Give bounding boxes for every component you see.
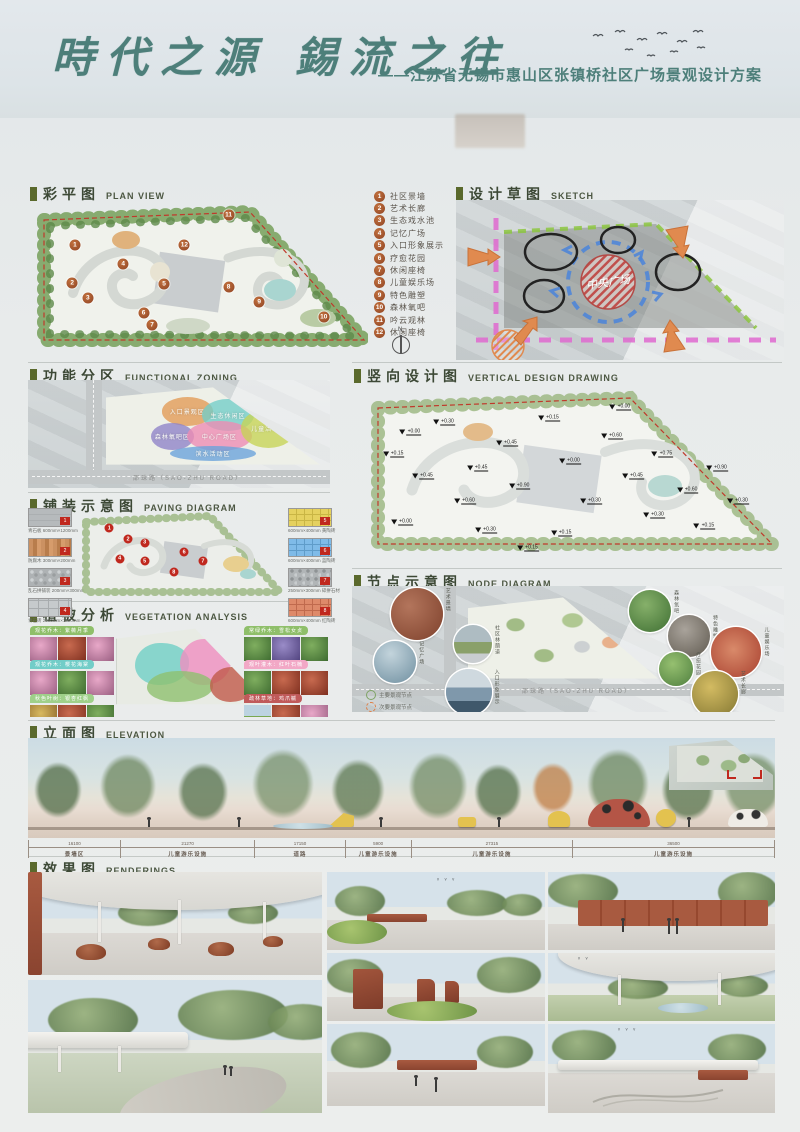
legend-label: 特色雕塑 [390, 290, 426, 301]
spot-triangle-icon [383, 452, 389, 457]
segment-dimension: 16100 [29, 841, 120, 848]
spot-triangle-icon [551, 531, 557, 536]
render-table [263, 936, 283, 947]
spot-elevation-marker: +0.75 [652, 451, 674, 458]
node-label: 艺术景墙 [445, 588, 452, 612]
render-column [58, 1046, 61, 1072]
north-compass-icon: N [392, 336, 410, 354]
legend-label: 社区景墙 [390, 191, 426, 202]
spot-value: +0.45 [503, 440, 518, 447]
vegetation-tag: 疏林草地：鸡爪槭 [244, 694, 302, 703]
node-label: 社区林荫道 [494, 625, 501, 655]
segment-label: 儿童游乐设施 [573, 850, 774, 858]
paving-swatch: 5600mm×400mm 黄陶砖 [288, 508, 330, 534]
spot-value: +0.90 [713, 465, 728, 472]
render-tree [477, 957, 541, 993]
render-monolith [353, 969, 383, 1009]
plan-marker: 10 [318, 312, 329, 323]
node-legend-label: 次要景观节点 [379, 703, 412, 711]
spot-value: +0.60 [684, 487, 699, 494]
play-box [458, 817, 476, 827]
road-vertical [86, 380, 102, 472]
segment-dimension: 21270 [121, 841, 254, 848]
spot-elevation-marker: +0.30 [727, 497, 749, 504]
spot-triangle-icon [677, 488, 683, 493]
plan-marker: 9 [254, 296, 265, 307]
plan-number-markers: 123456789101112 [28, 198, 368, 355]
paving-swatch-number: 4 [60, 607, 70, 615]
spot-value: +0.90 [516, 483, 531, 490]
render-tree [477, 1036, 533, 1068]
segment-dimension: 27315 [412, 841, 572, 848]
vertical-design-drawing: +0.00+0.30+0.15+0.45+0.60+0.00+0.30+0.90… [360, 382, 780, 562]
paving-dot: 1 [105, 524, 114, 533]
legend-item: 12休闲座椅 [374, 326, 460, 338]
spot-value: +0.00 [398, 519, 413, 526]
legend-number: 2 [374, 203, 385, 214]
spot-triangle-icon [622, 473, 628, 478]
spot-triangle-icon [559, 459, 565, 464]
zoning-zones: 入口景观区生态休闲区森林氧吧区中心广场区滨水活动区儿童活动区 [106, 384, 320, 468]
spot-elevation-marker: +0.30 [475, 526, 497, 533]
vegetation-photo-strips: 观花乔木：紫薇月季观花乔木：樱花海棠秋色叶树：银杏红枫常绿乔木：雪松女贞观叶灌木… [28, 615, 330, 717]
elevation-groundline [28, 827, 775, 830]
spot-triangle-icon [706, 466, 712, 471]
render-lawn-mound [327, 920, 387, 944]
paving-swatch: 1青石板 600mm×1200mm [28, 508, 70, 534]
paving-swatch: 6600mm×400mm 蓝陶砖 [288, 538, 330, 564]
design-poster: 時代之源 錫流之往 ——江苏省无锡市惠山区张镇桥社区广场景观设计方案 彩平图 P… [0, 0, 800, 1132]
rendering-community-path [28, 980, 322, 1113]
legend-label: 休闲座椅 [390, 265, 426, 276]
elevation-segment: 5900儿童游乐设施 [345, 840, 411, 858]
section-mark [753, 770, 762, 779]
paving-swatch-number: 5 [320, 517, 330, 525]
paving-swatch-sample: 7 [288, 568, 332, 587]
legend-label: 记忆广场 [390, 228, 426, 239]
paving-swatch-number: 6 [320, 547, 330, 555]
spot-triangle-icon [538, 416, 544, 421]
legend-item: 2艺术长廊 [374, 202, 460, 214]
rendering-memory-wall [548, 872, 775, 950]
spot-value: +0.15 [524, 544, 539, 551]
legend-label: 吟云观林 [390, 315, 426, 326]
vegetation-tag: 观花乔木：樱花海棠 [30, 660, 94, 669]
paving-swatch: 3乱石拼铺装 200mm×300mm [28, 568, 70, 594]
zone-label: 儿童活动区 [251, 424, 286, 433]
legend-number: 10 [374, 302, 385, 313]
elevation-dimension-line: 16100景墙区21270儿童游乐设施17150道路5900儿童游乐设施2731… [28, 840, 775, 858]
sketch-drawing: 中央广场 [456, 200, 784, 360]
legend-label: 生态戏水池 [390, 215, 435, 226]
node-photo [454, 625, 492, 663]
legend-item: 11吟云观林 [374, 314, 460, 326]
paving-dot: 5 [140, 557, 149, 566]
node-label: 疗愈花园 [695, 652, 702, 676]
legend-number: 1 [374, 191, 385, 202]
legend-item: 8儿童娱乐场 [374, 277, 460, 289]
birds-flock-icon: ᵛ ᵛ [578, 957, 590, 963]
elevation-drawing [28, 738, 775, 838]
render-lawn-mound [387, 1001, 477, 1021]
vegetation-tag: 秋色叶树：银杏红枫 [30, 694, 94, 703]
legend-item: 7休闲座椅 [374, 264, 460, 276]
section-title-en: SKETCH [551, 188, 594, 201]
paving-swatch-caption: 乱石拼铺装 200mm×300mm [28, 588, 70, 594]
spot-elevation-marker: +0.00 [400, 429, 422, 436]
zone-label: 入口景观区 [170, 407, 205, 416]
person-silhouette [415, 1078, 417, 1086]
legend-item: 4记忆广场 [374, 227, 460, 239]
spot-elevation-marker: +0.15 [517, 544, 539, 551]
rendering-art-monoliths [327, 953, 545, 1021]
page-subtitle: ——江苏省无锡市惠山区张镇桥社区广场景观设计方案 [378, 64, 762, 85]
legend-number: 3 [374, 215, 385, 226]
paving-swatch-number: 7 [320, 577, 330, 585]
elevation-spot-markers: +0.00+0.30+0.15+0.45+0.60+0.00+0.30+0.90… [360, 382, 780, 562]
legend-item: 6疗愈花园 [374, 252, 460, 264]
section-title-en: VERTICAL DESIGN DRAWING [468, 370, 619, 383]
legend-number: 12 [374, 327, 385, 338]
node-diagram: 邵珠路（SAO-ZHU ROAD） 艺术景墙记忆广场社区林荫道入口形象展示森林氧… [352, 586, 784, 712]
person-silhouette [148, 820, 150, 827]
render-column [98, 902, 101, 942]
paving-swatch: 7250mm×300mm 碎拼石材 [288, 568, 330, 594]
paving-swatch-sample: 6 [288, 538, 332, 557]
render-tree [447, 890, 507, 916]
paving-swatch-number: 3 [60, 577, 70, 585]
render-tree [335, 886, 385, 916]
render-column [118, 1046, 121, 1072]
render-brick-wall [578, 900, 768, 926]
render-low-wall [367, 914, 427, 922]
elevation-segment: 27315儿童游乐设施 [411, 840, 572, 858]
node-photo [659, 652, 693, 686]
divider [28, 492, 330, 493]
legend-label: 入口形象展示 [390, 240, 444, 251]
node-photo [692, 671, 738, 712]
spot-value: +0.45 [474, 465, 489, 472]
render-column [618, 975, 621, 1005]
white-dome [728, 809, 768, 827]
divider [352, 362, 782, 363]
legend-label: 儿童娱乐场 [390, 277, 435, 288]
spot-triangle-icon [412, 473, 418, 478]
paving-swatch-caption: 600mm×400mm 黄陶砖 [288, 528, 330, 534]
plant-photo [58, 705, 85, 717]
zone-label: 森林氧吧区 [155, 432, 190, 441]
divider [352, 568, 782, 569]
spot-triangle-icon [475, 527, 481, 532]
road-label: 邵珠路（SAO-ZHU ROAD） [133, 473, 243, 482]
render-tree [502, 894, 542, 916]
paving-swatch-caption: 600mm×400mm 蓝陶砖 [288, 558, 330, 564]
paving-swatch-caption: 青石板 600mm×1200mm [28, 528, 70, 534]
spot-value: +0.15 [545, 415, 560, 422]
render-pergola [28, 1032, 188, 1048]
spot-triangle-icon [610, 405, 616, 410]
plan-legend: 1社区景墙2艺术长廊3生态戏水池4记忆广场5入口形象展示6疗愈花园7休闲座椅8儿… [374, 190, 460, 339]
segment-label: 儿童游乐设施 [412, 850, 572, 858]
legend-item: 10森林氧吧 [374, 302, 460, 314]
section-mark [727, 770, 736, 779]
legend-label: 疗愈花园 [390, 253, 426, 264]
render-table [208, 942, 234, 956]
paving-swatch-sample: 1 [28, 508, 72, 527]
paving-dot: 6 [180, 548, 189, 557]
node-label: 森林氧吧 [673, 590, 680, 614]
legend-number: 8 [374, 277, 385, 288]
function-zone: 滨水活动区 [170, 446, 256, 461]
person-silhouette [498, 820, 500, 827]
plan-marker: 4 [118, 258, 129, 269]
spot-elevation-marker: +0.15 [383, 451, 405, 458]
birds-flock-icon: ᵛ ᵛ ᵛ [618, 1028, 637, 1034]
spot-triangle-icon [509, 484, 515, 489]
elevation-segment: 17150道路 [254, 840, 344, 858]
plant-photo [244, 705, 271, 717]
paving-swatch-number: 2 [60, 547, 70, 555]
paving-swatch-sample: 5 [288, 508, 332, 527]
render-column [718, 973, 721, 1005]
render-table [76, 944, 106, 960]
zone-label: 中心广场区 [202, 432, 237, 441]
spot-value: +0.30 [734, 497, 749, 504]
paving-swatch-sample: 3 [28, 568, 72, 587]
render-column [178, 900, 181, 944]
plan-marker: 8 [223, 282, 234, 293]
legend-label: 艺术长廊 [390, 203, 426, 214]
rendering-plaza-overview: ᵛ ᵛ ᵛ [327, 872, 545, 950]
legend-number: 7 [374, 265, 385, 276]
node-legend-item: 次要景观节点 [366, 702, 412, 712]
birds-flock-icon [585, 26, 715, 66]
rendering-canopy-plaza [28, 872, 322, 975]
vegetation-photos [30, 705, 114, 717]
spot-elevation-marker: +0.90 [706, 465, 728, 472]
spot-value: +0.45 [629, 472, 644, 479]
spot-value: +0.30 [440, 418, 455, 425]
rendering-street-view [327, 1024, 545, 1106]
spot-elevation-marker: +0.45 [622, 472, 644, 479]
spot-elevation-marker: +0.60 [454, 497, 476, 504]
render-pond [658, 1003, 708, 1013]
plan-marker: 12 [179, 240, 190, 251]
spot-triangle-icon [517, 545, 523, 550]
segment-dimension: 36500 [573, 841, 774, 848]
spot-elevation-marker: +0.15 [694, 523, 716, 530]
node-label: 记忆广场 [418, 641, 425, 665]
node-label: 入口形象展示 [494, 669, 501, 705]
paving-dot: 4 [115, 554, 124, 563]
legend-number: 9 [374, 290, 385, 301]
spot-elevation-marker: +0.30 [580, 497, 602, 504]
segment-dimension: 17150 [255, 841, 344, 848]
person-silhouette [230, 1069, 232, 1076]
spot-elevation-marker: +0.00 [391, 519, 413, 526]
person-silhouette [676, 921, 678, 934]
node-photo [391, 588, 443, 640]
plan-marker: 5 [159, 279, 170, 290]
spot-elevation-marker: +0.90 [509, 483, 531, 490]
node-photo [668, 615, 710, 657]
render-tree [331, 1032, 391, 1068]
person-silhouette [380, 820, 382, 827]
plant-photo [87, 705, 114, 717]
road-centerline [93, 380, 94, 472]
spot-value: +0.75 [659, 451, 674, 458]
spot-elevation-marker: +0.15 [538, 415, 560, 422]
person-silhouette [435, 1080, 437, 1092]
vegetation-strip: 秋色叶树：银杏红枫 [30, 687, 114, 717]
legend-item: 5入口形象展示 [374, 240, 460, 252]
spot-triangle-icon [391, 520, 397, 525]
node-photo [446, 669, 492, 712]
vegetation-tag: 观叶灌木：红叶石楠 [244, 660, 308, 669]
spot-value: +0.30 [482, 526, 497, 533]
primary-node-icon [366, 690, 376, 700]
render-pavement-pattern [588, 1082, 728, 1108]
node-legend: 主要景观节点次要景观节点 [366, 690, 412, 712]
water-feature [273, 823, 333, 829]
plant-photo [30, 705, 57, 717]
paving-dot: 8 [169, 568, 178, 577]
plan-marker: 7 [147, 320, 158, 331]
divider [28, 362, 330, 363]
sketch-overlay: 中央广场 [456, 200, 784, 360]
render-pavilion-roof [558, 1060, 758, 1070]
spot-triangle-icon [496, 441, 502, 446]
spot-value: +0.00 [617, 404, 632, 411]
plant-photo [301, 705, 328, 717]
spot-elevation-marker: +0.45 [412, 472, 434, 479]
segment-dimension: 5900 [346, 841, 411, 848]
compass-n-label: N [398, 327, 402, 333]
spot-elevation-marker: +0.60 [601, 433, 623, 440]
render-brick-wall [698, 1070, 748, 1080]
rendering-canopy-lawn: ᵛ ᵛ [548, 953, 775, 1021]
play-tube [548, 811, 570, 827]
vegetation-strip: 疏林草地：鸡爪槭 [244, 687, 328, 717]
render-table [148, 938, 170, 950]
vegetation-photos [244, 705, 328, 717]
person-silhouette [622, 921, 624, 932]
person-silhouette [668, 921, 670, 934]
plan-marker: 11 [223, 210, 234, 221]
spot-triangle-icon [580, 498, 586, 503]
zoning-site: 入口景观区生态休闲区森林氧吧区中心广场区滨水活动区儿童活动区 [106, 384, 320, 468]
divider [28, 601, 330, 602]
banner-treeline-photo [0, 96, 800, 182]
spot-value: +0.15 [558, 530, 573, 537]
paving-dot: 2 [124, 535, 133, 544]
render-low-wall [397, 1060, 477, 1070]
render-floor [548, 924, 775, 950]
spot-value: +0.00 [566, 458, 581, 465]
birds-flock-icon: ᵛ ᵛ ᵛ [437, 878, 456, 884]
spot-triangle-icon [694, 524, 700, 529]
plan-marker: 3 [82, 293, 93, 304]
legend-item: 9特色雕塑 [374, 289, 460, 301]
spot-elevation-marker: +0.60 [677, 487, 699, 494]
zone-label: 滨水活动区 [195, 449, 230, 458]
divider [28, 720, 775, 721]
spot-triangle-icon [400, 430, 406, 435]
person-silhouette [688, 820, 690, 827]
rendering-entry-plaza: ᵛ ᵛ ᵛ [548, 1024, 775, 1113]
plan-marker: 1 [69, 240, 80, 251]
paving-dot: 3 [140, 538, 149, 547]
node-legend-label: 主要景观节点 [379, 691, 412, 699]
paving-swatch-number: 8 [320, 607, 330, 615]
spot-elevation-marker: +0.45 [496, 440, 518, 447]
function-zone: 儿童活动区 [241, 409, 297, 448]
spot-value: +0.15 [701, 523, 716, 530]
paving-legend-right: 5600mm×400mm 黄陶砖6600mm×400mm 蓝陶砖7250mm×3… [288, 508, 330, 624]
spot-value: +0.15 [390, 451, 405, 458]
legend-number: 6 [374, 253, 385, 264]
paving-dot: 7 [198, 557, 207, 566]
person-silhouette [238, 820, 240, 827]
node-photo [629, 590, 671, 632]
paving-number-dots: 12345678 [76, 508, 284, 600]
legend-item: 3生态戏水池 [374, 215, 460, 227]
spot-value: +0.60 [461, 497, 476, 504]
paving-drawing: 12345678 [76, 508, 284, 600]
spot-elevation-marker: +0.45 [467, 465, 489, 472]
section-bullet [354, 369, 361, 383]
spot-triangle-icon [643, 513, 649, 518]
legend-number: 5 [374, 240, 385, 251]
spot-elevation-marker: +0.00 [559, 458, 581, 465]
vegetation-analysis: 观花乔木：紫薇月季观花乔木：樱花海棠秋色叶树：银杏红枫常绿乔木：雪松女贞观叶灌木… [28, 615, 330, 717]
person-silhouette [224, 1068, 226, 1075]
paving-swatch-number: 1 [60, 517, 70, 525]
elevation-segment: 21270儿童游乐设施 [120, 840, 254, 858]
legend-label: 森林氧吧 [390, 302, 426, 313]
elevation-segment: 36500儿童游乐设施 [572, 840, 775, 858]
spot-value: +0.45 [419, 472, 434, 479]
spot-elevation-marker: +0.30 [643, 512, 665, 519]
paving-swatch-caption: 防腐木 300mm×200mm [28, 558, 70, 564]
paving-swatch-caption: 250mm×300mm 碎拼石材 [288, 588, 330, 594]
render-column [263, 902, 266, 942]
legend-item: 1社区景墙 [374, 190, 460, 202]
spot-triangle-icon [467, 466, 473, 471]
zoning-drawing: 邵珠路（SAO-ZHU ROAD） 入口景观区生态休闲区森林氧吧区中心广场区滨水… [28, 380, 330, 488]
spot-triangle-icon [601, 434, 607, 439]
spot-value: +0.60 [608, 433, 623, 440]
plan-view-drawing: 123456789101112 [28, 198, 368, 355]
render-tree [552, 1030, 616, 1064]
spot-triangle-icon [727, 498, 733, 503]
plant-photo [272, 705, 299, 717]
secondary-node-icon [366, 702, 376, 712]
spot-elevation-marker: +0.15 [551, 530, 573, 537]
spot-value: +0.30 [650, 512, 665, 519]
node-label: 艺术长廊 [740, 671, 747, 695]
plan-marker: 2 [67, 277, 78, 288]
spot-value: +0.00 [407, 429, 422, 436]
paving-swatch: 2防腐木 300mm×200mm [28, 538, 70, 564]
render-brick-column [28, 872, 42, 975]
legend-number: 11 [374, 315, 385, 326]
zone-label: 生态休闲区 [210, 411, 245, 420]
node-legend-item: 主要景观节点 [366, 690, 412, 700]
spot-triangle-icon [454, 498, 460, 503]
spot-elevation-marker: +0.30 [433, 418, 455, 425]
play-ring [656, 809, 676, 827]
